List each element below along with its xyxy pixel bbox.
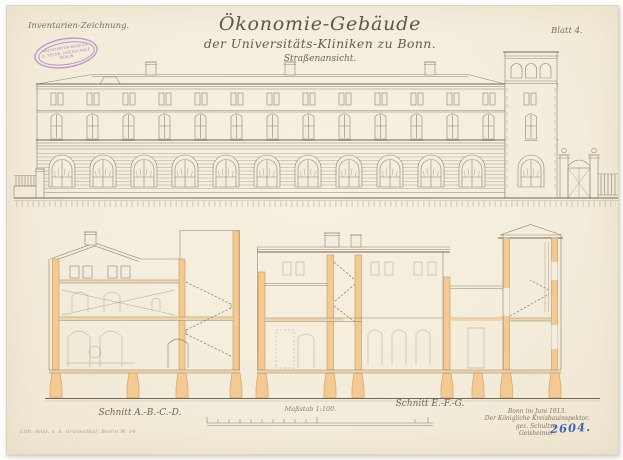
main-window-row bbox=[50, 114, 496, 141]
sheet-number: Blatt 4. bbox=[551, 26, 583, 36]
corner-tower bbox=[503, 52, 559, 198]
scale-bar bbox=[203, 414, 437, 430]
sections-ground-line bbox=[45, 399, 600, 402]
left-fence bbox=[14, 169, 45, 198]
drawing-title: Ökonomie-Gebäude bbox=[160, 13, 480, 35]
attic-window-row bbox=[51, 93, 495, 105]
inventory-number: 2604. bbox=[550, 420, 592, 436]
section-abcd bbox=[49, 231, 242, 399]
sections-drawing bbox=[0, 222, 623, 408]
section-abcd-label: Schnitt A.-B.-C.-D. bbox=[85, 408, 195, 418]
printer-note: Lith. Anst. v. A. Grunenthal, Berlin W. … bbox=[20, 429, 137, 435]
right-gate bbox=[558, 148, 618, 198]
signature-place-date: Bonn im Juni 1913. bbox=[462, 408, 612, 415]
elevation-drawing bbox=[0, 40, 623, 212]
classification-note: Inventarien-Zeichnung. bbox=[28, 21, 129, 31]
scale-label: Maßstab 1:100. bbox=[253, 405, 368, 413]
section-efg-tower bbox=[257, 225, 563, 399]
ground-line bbox=[14, 198, 618, 204]
roof bbox=[37, 62, 505, 84]
ground-window-row bbox=[49, 155, 485, 187]
